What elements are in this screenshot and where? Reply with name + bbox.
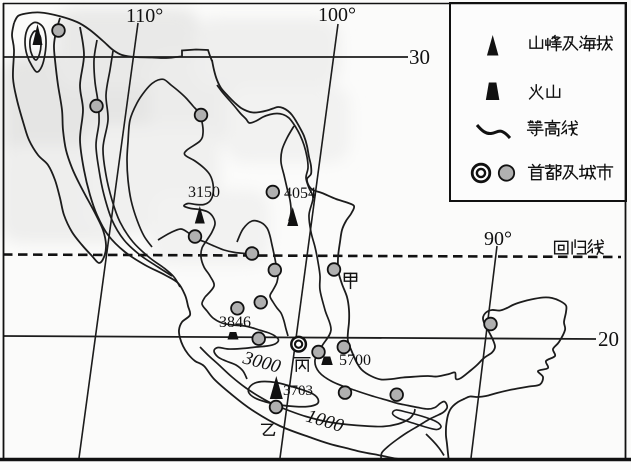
svg-text:4054: 4054 xyxy=(284,185,316,202)
svg-text:5700: 5700 xyxy=(339,352,371,369)
svg-text:30: 30 xyxy=(409,45,430,69)
svg-text:90°: 90° xyxy=(484,228,512,250)
svg-text:3846: 3846 xyxy=(219,314,251,331)
svg-text:110°: 110° xyxy=(126,5,163,27)
svg-text:3703: 3703 xyxy=(283,383,313,399)
svg-text:20: 20 xyxy=(598,327,619,351)
svg-text:100°: 100° xyxy=(318,4,356,26)
svg-text:3150: 3150 xyxy=(188,184,220,201)
